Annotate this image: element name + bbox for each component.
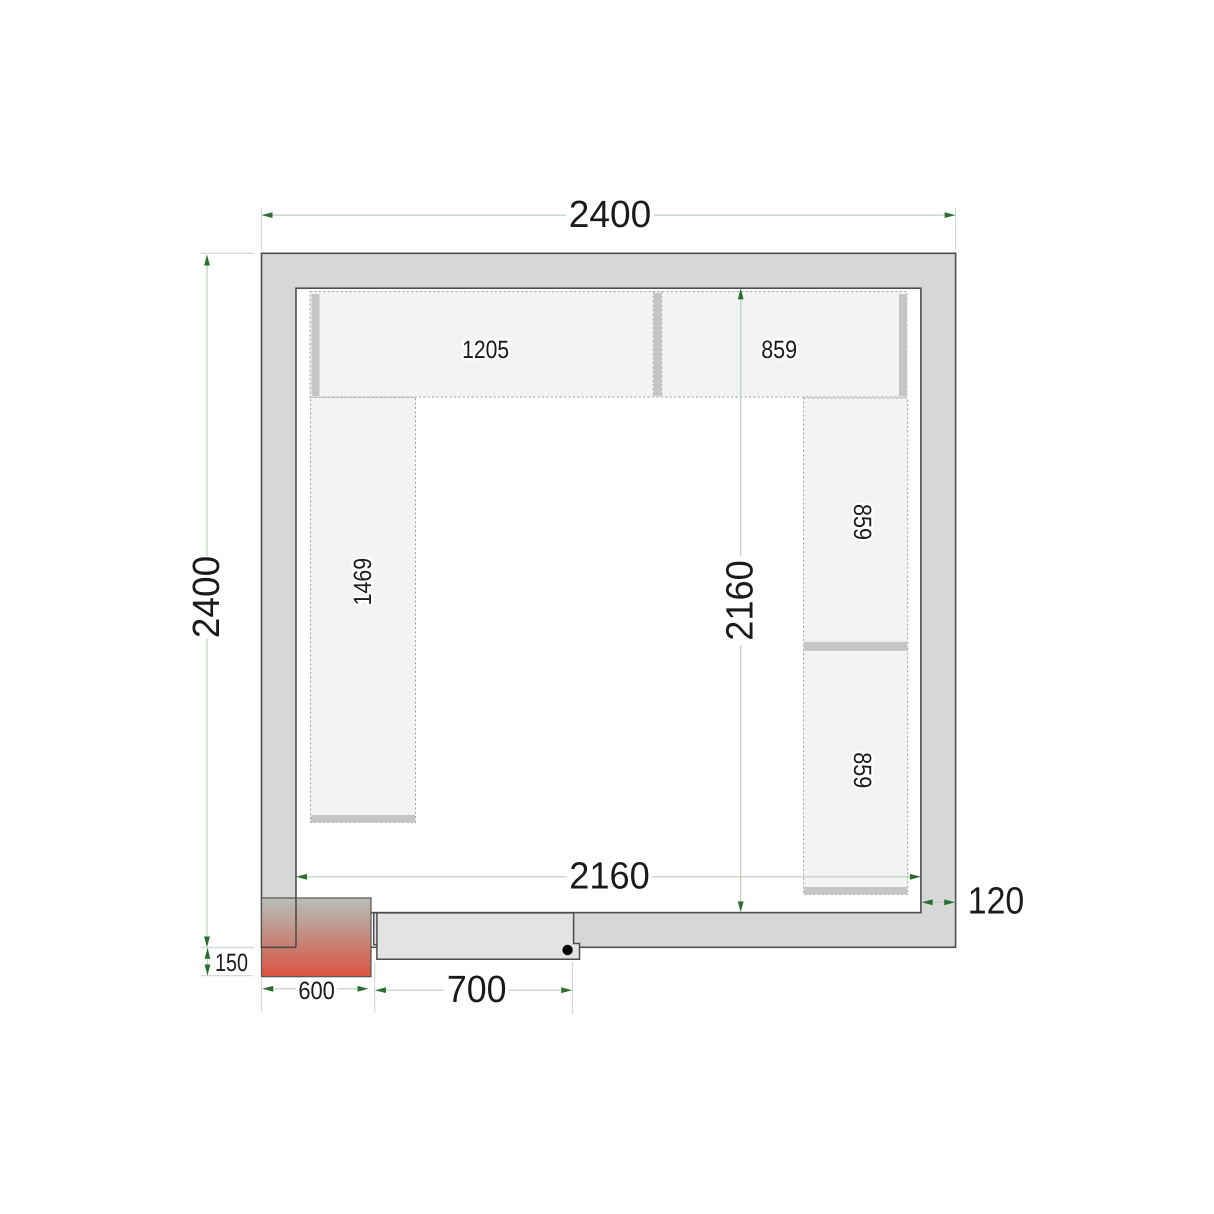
svg-text:600: 600 [298, 977, 335, 1005]
svg-text:859: 859 [761, 336, 797, 364]
svg-text:120: 120 [968, 880, 1025, 922]
svg-text:1469: 1469 [349, 558, 377, 606]
svg-text:859: 859 [848, 752, 876, 788]
svg-text:2160: 2160 [720, 560, 762, 641]
svg-text:859: 859 [848, 504, 876, 540]
svg-text:2160: 2160 [569, 856, 650, 898]
svg-text:1205: 1205 [462, 336, 509, 364]
svg-text:700: 700 [447, 969, 507, 1011]
svg-text:150: 150 [215, 949, 248, 977]
svg-text:2400: 2400 [186, 556, 228, 639]
svg-text:2400: 2400 [569, 194, 652, 236]
